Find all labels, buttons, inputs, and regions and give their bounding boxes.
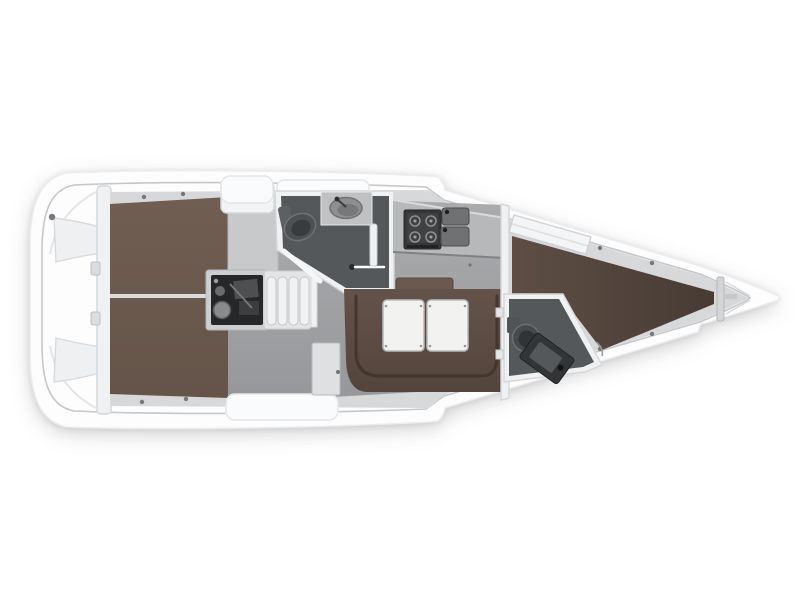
shower-partition bbox=[370, 224, 377, 266]
aft-berth-divider bbox=[110, 294, 213, 298]
step-1 bbox=[267, 277, 276, 325]
aft-head-faucet-base bbox=[335, 197, 340, 202]
bow-bulkhead-tick bbox=[724, 294, 737, 299]
yacht-floorplan bbox=[0, 0, 800, 600]
companionway-sill bbox=[311, 273, 317, 327]
coachroof-hatch-bottom bbox=[226, 394, 338, 420]
coachroof-hatch-top-a bbox=[221, 176, 273, 203]
companionway-steps bbox=[264, 271, 317, 329]
table-leaf-left bbox=[383, 300, 424, 351]
sink-faucet-a bbox=[445, 210, 449, 214]
engine-part-b bbox=[239, 301, 259, 315]
engine-part-a bbox=[233, 279, 259, 299]
step-2 bbox=[278, 277, 287, 325]
bulkhead-latch-bottom bbox=[91, 312, 100, 325]
galley-stove bbox=[404, 210, 441, 249]
bulkhead-hinge-top bbox=[496, 308, 503, 317]
bulkhead-latch-top bbox=[91, 262, 100, 275]
step-4 bbox=[300, 277, 309, 325]
bow-bulkhead-bar bbox=[717, 277, 724, 321]
table-leaf-right bbox=[427, 300, 468, 351]
sink-faucet-b bbox=[443, 228, 447, 232]
aft-bulkhead bbox=[97, 186, 111, 414]
bulkhead-hinge-bottom bbox=[496, 350, 503, 359]
galley-double-sink bbox=[441, 208, 469, 246]
engine-cap bbox=[214, 279, 218, 283]
engine-pulley bbox=[215, 286, 225, 296]
floorplan-canvas bbox=[0, 0, 800, 600]
side-cabinet-knob bbox=[336, 370, 340, 374]
aft-head-basin-bowl bbox=[338, 204, 359, 216]
step-3 bbox=[289, 277, 298, 325]
side-cabinet bbox=[312, 343, 340, 395]
engine-flywheel bbox=[214, 302, 231, 319]
stern-fitting-dot bbox=[49, 214, 55, 220]
engine-compartment bbox=[206, 270, 268, 330]
